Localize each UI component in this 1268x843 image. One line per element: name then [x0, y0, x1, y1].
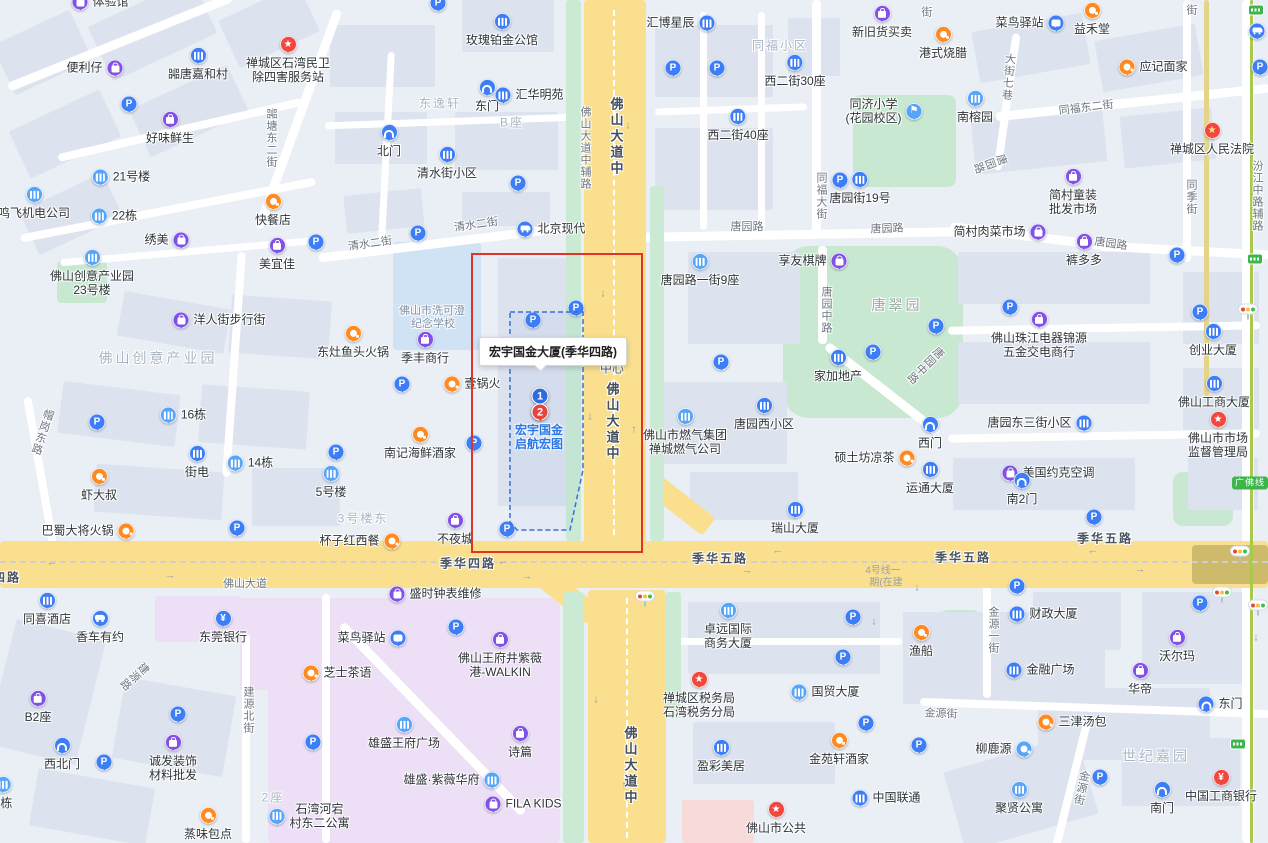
b-icon [189, 47, 206, 64]
result-marker-1[interactable]: 1 [532, 388, 549, 405]
poi-label: 洋人街步行街 [193, 313, 265, 327]
poi-label: 快餐店 [255, 213, 291, 227]
pu-icon-glyph [1069, 174, 1077, 181]
parking-poi[interactable]: P [845, 609, 862, 626]
parking-icon: P [1092, 769, 1109, 786]
selected-poi-tooltip[interactable]: 宏宇国金大厦(季华四路) [479, 337, 627, 366]
parking-icon: P [448, 619, 465, 636]
poi-label: 虾大叔 [81, 488, 117, 502]
poi-label: 东莞银行 [199, 630, 247, 644]
parking-poi[interactable]: P [308, 234, 325, 251]
poi-chat[interactable]: 菜鸟驿站 [337, 630, 406, 647]
poi-label: 西二街30座 [764, 74, 825, 88]
parking-poi[interactable]: P [713, 354, 730, 371]
poi-label: 杯子红西餐 [319, 534, 379, 548]
poi-o[interactable]: 硕土坊凉茶 [834, 450, 915, 467]
poi-label: 西二街40座 [707, 128, 768, 142]
o-icon [344, 325, 361, 342]
poi-pu[interactable]: 盛时钟表维修 [388, 586, 481, 603]
pin-icon-glyph [1021, 746, 1028, 753]
poi-bus[interactable] [1249, 23, 1266, 40]
poi-b[interactable]: 金融广场 [1005, 662, 1074, 679]
pu-icon-glyph [489, 802, 497, 809]
poi-o[interactable]: 港式烧腊 [919, 26, 967, 60]
parking-poi[interactable]: P [665, 60, 682, 77]
poi-o[interactable]: 蒸味包点 [184, 807, 232, 841]
poi-label: 同济小学(花园校区) [846, 97, 902, 125]
g-icon [478, 79, 495, 96]
parking-poi[interactable]: P [928, 318, 945, 335]
poi-label: 禅城区人民法院 [1170, 142, 1254, 156]
parking-poi[interactable]: P [1009, 578, 1026, 595]
poi-b[interactable]: 瑞山大厦 [771, 501, 819, 535]
parking-icon: P [96, 754, 113, 771]
b-icon-glyph [1009, 666, 1018, 674]
poi-g[interactable]: 东门 [1197, 696, 1242, 713]
pu-icon-glyph [1034, 230, 1042, 237]
poi-g[interactable]: 南门 [1150, 781, 1174, 815]
parking-poi[interactable]: P [835, 649, 852, 666]
poi-o[interactable]: 虾大叔 [81, 468, 117, 502]
parking-glyph: P [1174, 250, 1181, 260]
poi-pu[interactable]: 体验馆 [71, 0, 128, 11]
parking-icon: P [858, 715, 875, 732]
parking-poi[interactable]: P [96, 754, 113, 771]
poi-b[interactable]: 财政大厦 [1008, 606, 1077, 623]
g-icon-glyph [1157, 787, 1167, 795]
poi-pu[interactable]: FILA KIDS [484, 796, 561, 813]
poi-pu[interactable]: 绣美 [144, 232, 189, 249]
poi-pu[interactable]: 裤多多 [1066, 233, 1102, 267]
o-icon-glyph [416, 431, 423, 438]
parking-poi[interactable]: P [1192, 595, 1209, 612]
poi-b[interactable]: 唐园西小区 [734, 397, 794, 431]
road-label: 唐翠园 [872, 295, 923, 315]
poi-car[interactable]: 北京现代 [516, 221, 585, 238]
parking-poi[interactable]: P [709, 60, 726, 77]
b-icon-glyph [1080, 419, 1089, 427]
poi-bp[interactable]: 国贸大厦 [790, 684, 859, 701]
b-icon [786, 501, 803, 518]
pu-icon-glyph [835, 259, 843, 266]
poi-rs[interactable]: ★佛山市市场监督管理局 [1188, 411, 1248, 459]
parking-icon: P [709, 60, 726, 77]
poi-bp[interactable]: 石湾河宕村东二公寓 [268, 802, 349, 830]
traffic-light-icon [1238, 304, 1258, 315]
b-icon-glyph [703, 19, 712, 27]
poi-pu[interactable]: 洋人街步行街 [172, 312, 265, 329]
parking-poi[interactable]: P [858, 715, 875, 732]
g-icon [1153, 781, 1170, 798]
road-label: 同福小区 [752, 37, 808, 54]
parking-poi[interactable]: P [466, 435, 483, 452]
poi-ct[interactable]: ★禅城区人民法院 [1170, 122, 1254, 156]
poi-b[interactable]: 运通大厦 [906, 461, 954, 495]
sch-icon-glyph: ⚑ [910, 106, 919, 116]
parking-glyph: P [234, 523, 241, 533]
bank-icon: ¥ [214, 610, 231, 627]
road-verge-green [650, 186, 664, 541]
parking-glyph: P [94, 417, 101, 427]
b-icon-glyph [716, 743, 725, 751]
b-icon [494, 87, 511, 104]
direction-arrow: ↓ [1254, 195, 1260, 206]
parking-poi[interactable]: P [410, 225, 427, 242]
poi-label: 应记面家 [1139, 60, 1187, 74]
poi-bp[interactable]: 唐园路一街9座 [661, 253, 740, 287]
poi-pu[interactable]: 新旧货买卖 [852, 5, 912, 39]
direction-arrow: → [165, 571, 176, 582]
poi-label: 西门 [918, 436, 942, 450]
poi-b[interactable]: 唐园东三街小区 [987, 415, 1092, 432]
pu-icon [484, 796, 501, 813]
poi-label: 创业大厦 [1189, 343, 1237, 357]
poi-g[interactable]: 西北门 [44, 737, 80, 771]
road-label: 佛山大道中 [603, 382, 622, 462]
poi-car[interactable]: 香车有约 [76, 610, 124, 644]
poi-b[interactable]: 西二街30座 [764, 54, 825, 88]
poi-bp[interactable]: 聚贤公寓 [995, 781, 1043, 815]
hotel-icon-glyph [42, 596, 51, 604]
poi-pu[interactable]: 季丰商行 [401, 331, 449, 365]
poi-g[interactable]: 北门 [377, 124, 401, 158]
poi-label: 体验馆 [92, 0, 128, 9]
o-icon-glyph [349, 330, 356, 337]
parking-poi[interactable]: P [911, 737, 928, 754]
poi-o[interactable]: 应记面家 [1118, 59, 1187, 76]
g-icon [1197, 696, 1214, 713]
bp-icon-glyph [29, 190, 38, 198]
poi-bp[interactable]: 6栋 [0, 776, 12, 810]
pu-icon-glyph [451, 518, 459, 525]
parking-glyph: P [175, 709, 182, 719]
poi-label: 雄盛·紫薇华府 [404, 773, 480, 787]
poi-b[interactable]: 中国联通 [851, 790, 920, 807]
bp-icon-glyph [680, 412, 689, 420]
poi-bp[interactable]: 佛山创意产业园23号楼 [50, 249, 134, 297]
poi-o[interactable]: 东灶鱼头火锅 [317, 325, 389, 359]
b-icon [1008, 606, 1025, 623]
result-marker-2[interactable]: 2 [532, 404, 549, 421]
poi-pu[interactable]: 便利仔 [66, 60, 123, 77]
bp-icon [790, 684, 807, 701]
g-icon-glyph [1201, 702, 1211, 710]
parking-poi[interactable]: P [832, 172, 849, 189]
pu-icon [173, 232, 190, 249]
traffic-light-icon [1248, 600, 1268, 611]
bp-icon [227, 455, 244, 472]
poi-label: 佛山市燃气集团禅城燃气公司 [643, 428, 727, 456]
bus-icon-glyph [1252, 28, 1262, 33]
parking-glyph: P [515, 178, 522, 188]
parking-poi[interactable]: P [394, 376, 411, 393]
poi-chat[interactable]: 菜鸟驿站 [995, 15, 1064, 32]
bp-icon-glyph [87, 253, 96, 261]
poi-o[interactable]: 巴蜀大将火锅 [41, 523, 134, 540]
poi-label: 渔船 [909, 644, 933, 658]
poi-o[interactable]: 益禾堂 [1074, 2, 1110, 36]
pu-icon-glyph [516, 731, 524, 738]
parking-poi[interactable]: P [229, 520, 246, 537]
poi-bp[interactable]: 鸣飞机电公司 [0, 186, 70, 220]
parking-glyph: P [840, 652, 847, 662]
poi-o[interactable]: 快餐店 [255, 193, 291, 227]
poi-bp[interactable]: 5号楼 [316, 465, 347, 499]
pu-icon [172, 312, 189, 329]
street-segment [700, 12, 707, 230]
o-icon-glyph [123, 528, 130, 535]
car-icon-glyph [95, 615, 105, 620]
pu-icon-glyph [421, 337, 429, 344]
poi-label: 柳鹿源 [975, 742, 1011, 756]
poi-bp[interactable]: 14栋 [227, 455, 273, 472]
traffic-light-icon [1230, 546, 1250, 557]
parking-poi[interactable]: P [1092, 769, 1109, 786]
parking-glyph: P [714, 63, 721, 73]
parking-poi[interactable]: P [170, 706, 187, 723]
parking-icon: P [466, 435, 483, 452]
rs-icon-glyph: ★ [695, 674, 704, 684]
poi-label: 瑞山大厦 [771, 521, 819, 535]
parking-icon: P [410, 225, 427, 242]
poi-pu[interactable]: 不夜城 [437, 512, 473, 546]
road-label: 街 [918, 6, 934, 18]
poi-sch[interactable]: 同济小学(花园校区)⚑ [846, 97, 923, 125]
road-label: 佛山大道 [223, 575, 267, 591]
poi-label: 西北门 [44, 757, 80, 771]
parking-poi[interactable]: P [865, 344, 882, 361]
parking-icon: P [713, 354, 730, 371]
poi-label: 南榕园 [957, 110, 993, 124]
pu-icon [511, 725, 528, 742]
b-icon-glyph [498, 91, 507, 99]
b-icon [1076, 415, 1093, 432]
pu-icon-glyph [76, 0, 84, 7]
poi-bp[interactable]: 16栋 [160, 407, 206, 424]
parking-poi[interactable]: P [305, 734, 322, 751]
b-icon [699, 15, 716, 32]
poi-b[interactable]: 创业大厦 [1189, 323, 1237, 357]
poi-label: 港式烧腊 [919, 46, 967, 60]
parking-glyph: P [453, 622, 460, 632]
o-icon-glyph [1088, 7, 1095, 14]
bus-icon [1249, 23, 1266, 40]
poi-b[interactable]: 西二街40座 [707, 108, 768, 142]
poi-b[interactable]: 嘂唐嘉和村 [168, 47, 228, 81]
parking-glyph: P [399, 379, 406, 389]
poi-label: 简村童装批发市场 [1049, 188, 1097, 216]
bp-icon-glyph [0, 780, 8, 788]
poi-label: 金融广场 [1026, 663, 1074, 677]
poi-label: 佛山创意产业园23号楼 [50, 269, 134, 297]
pu-icon [1075, 233, 1092, 250]
poi-b[interactable]: 清水街小区 [417, 146, 477, 180]
poi-pu[interactable]: 佛山王府井紫薇港-WALKIN [458, 631, 542, 679]
poi-pu[interactable]: 好味鲜生 [146, 111, 194, 145]
parking-glyph: P [101, 757, 108, 767]
direction-arrow: ← [1088, 546, 1099, 557]
bp-icon-glyph [327, 469, 336, 477]
o-icon [199, 807, 216, 824]
poi-o[interactable]: 南记海鲜酒家 [384, 426, 456, 460]
parking-poi[interactable]: P [430, 0, 447, 12]
pu-icon [161, 111, 178, 128]
poi-pu[interactable]: 享友棋牌 [778, 253, 847, 270]
parking-poi[interactable]: P [1169, 247, 1186, 264]
poi-b[interactable]: 街电 [185, 445, 209, 479]
poi-o[interactable]: 金苑轩酒家 [809, 732, 869, 766]
o-icon-glyph [389, 538, 396, 545]
metro-line-badge: 广佛线 [1232, 477, 1268, 490]
poi-pin[interactable]: 柳鹿源 [975, 741, 1032, 758]
parking-poi[interactable]: P [121, 96, 138, 113]
b-icon [829, 349, 846, 366]
poi-label: 唐园路一街9座 [661, 273, 740, 287]
pu-icon-glyph [1136, 668, 1144, 675]
road-label: 嘂塘东二街 [263, 108, 279, 168]
poi-label: 唐园东三街小区 [987, 416, 1071, 430]
road-label: 季华五路 [1077, 530, 1133, 547]
poi-label: 华帝 [1128, 682, 1152, 696]
parking-icon: P [1169, 247, 1186, 264]
o-icon [411, 426, 428, 443]
poi-rs[interactable]: ★禅城区税务局石湾税务分局 [663, 671, 735, 719]
poi-rb[interactable]: ¥中国工商银行 [1185, 769, 1257, 803]
road-label: 大街七巷 [998, 52, 1018, 101]
parking-poi[interactable]: P [1086, 509, 1103, 526]
parking-poi[interactable]: P [1252, 59, 1268, 76]
poi-b[interactable]: 佛山工商大厦 [1178, 375, 1250, 409]
bus-stop-icon [1230, 739, 1246, 750]
poi-pu[interactable]: 沃尔玛 [1159, 629, 1195, 663]
poi-bp[interactable]: 佛山市燃气集团禅城燃气公司 [643, 408, 727, 456]
parking-glyph: P [1257, 62, 1264, 72]
o-icon [384, 533, 401, 550]
bp-icon-glyph [164, 411, 173, 419]
poi-o[interactable]: 渔船 [909, 624, 933, 658]
b-icon [729, 108, 746, 125]
poi-g[interactable]: 南2门 [1007, 472, 1038, 506]
parking-poi[interactable]: P [1002, 299, 1019, 316]
o-icon-glyph [204, 812, 211, 819]
parking-glyph: P [850, 612, 857, 622]
g-icon [380, 124, 397, 141]
bp-icon [1010, 781, 1027, 798]
poi-pu[interactable]: 佛山珠江电器锦源五金交电商行 [991, 311, 1087, 359]
map-canvas[interactable]: 1 2 宏宇国金大厦(季华四路) 广佛线 清水二街清水二街唐园路唐园路唐园路唐园… [0, 0, 1268, 843]
g-icon [1014, 472, 1031, 489]
poi-pu[interactable]: 简村肉菜市场 [953, 224, 1046, 241]
o-icon [1083, 2, 1100, 19]
pu-icon [1131, 662, 1148, 679]
poi-bp[interactable]: 雄盛·紫薇华府 [404, 772, 501, 789]
rs-icon: ★ [767, 801, 784, 818]
poi-b[interactable]: 汇博星辰 [646, 15, 715, 32]
poi-hotel[interactable]: 同喜酒店 [23, 592, 71, 626]
parking-glyph: P [718, 357, 725, 367]
g-icon [53, 737, 70, 754]
poi-o[interactable]: 三津汤包 [1037, 714, 1106, 731]
poi-label: 南2门 [1007, 492, 1038, 506]
poi-label: 财政大厦 [1029, 607, 1077, 621]
o-icon-glyph [95, 473, 102, 480]
parking-poi[interactable]: P [510, 175, 527, 192]
parking-poi[interactable]: P [89, 414, 106, 431]
poi-label: 硕土坊凉茶 [834, 451, 894, 465]
poi-pu[interactable]: 美宜佳 [259, 237, 295, 271]
b-icon [493, 13, 510, 30]
poi-b[interactable]: 玫瑰铂金公馆 [466, 13, 538, 47]
pu-icon-glyph [177, 318, 185, 325]
poi-pu[interactable]: 简村童装批发市场 [1049, 168, 1097, 216]
poi-label: 东门 [1218, 697, 1242, 711]
poi-pu[interactable]: 诚发装饰材料批发 [149, 734, 197, 782]
poi-label: 菜鸟驿站 [995, 16, 1043, 30]
direction-arrow: ↑ [621, 781, 627, 792]
parking-poi[interactable]: P [1192, 304, 1209, 321]
road-label: 金源街 [924, 704, 958, 721]
b-icon [1205, 375, 1222, 392]
bp-icon-glyph [272, 812, 281, 820]
poi-bp[interactable]: 卓远国际商务大厦 [704, 602, 752, 650]
g-icon-glyph [482, 85, 492, 93]
road-label: 季华四路 [0, 569, 21, 586]
b-icon-glyph [1208, 327, 1217, 335]
poi-pu[interactable]: 华帝 [1128, 662, 1152, 696]
poi-b[interactable]: 家加地产 [814, 349, 862, 383]
poi-bp[interactable]: 21号楼 [92, 169, 150, 186]
parking-icon: P [229, 520, 246, 537]
poi-label: 芝士茶语 [323, 666, 371, 680]
rs-icon: ★ [279, 36, 296, 53]
poi-b[interactable]: 盈彩美居 [697, 739, 745, 773]
o-icon-glyph [939, 31, 946, 38]
poi-pu[interactable]: B2座 [25, 690, 52, 724]
bp-icon [268, 808, 285, 825]
parking-glyph: P [1197, 598, 1204, 608]
poi-o[interactable]: 芝士茶语 [302, 665, 371, 682]
parking-poi[interactable]: P [328, 444, 345, 461]
poi-label: 东灶鱼头火锅 [317, 345, 389, 359]
pu-icon-glyph [177, 238, 185, 245]
poi-rs[interactable]: ★禅城区石湾民卫除四害服务站 [246, 36, 330, 84]
poi-label: 雄盛王府广场 [368, 736, 440, 750]
poi-o[interactable]: 壹锅火 [443, 376, 500, 393]
b-icon-glyph [497, 17, 506, 25]
direction-arrow: ↓ [593, 695, 599, 706]
pu-icon-glyph [169, 740, 177, 747]
poi-pu[interactable]: 诗篇 [508, 725, 532, 759]
parking-glyph: P [863, 718, 870, 728]
poi-g[interactable]: 西门 [918, 416, 942, 450]
poi-rs[interactable]: ★佛山市公共 [746, 801, 806, 835]
poi-bp[interactable]: 南榕园 [957, 90, 993, 124]
poi-o[interactable]: 杯子红西餐 [319, 533, 400, 550]
poi-bp[interactable]: 雄盛王府广场 [368, 716, 440, 750]
bp-icon-glyph [696, 257, 705, 265]
parking-poi[interactable]: P [448, 619, 465, 636]
road-label: 佛山创意产业园 [99, 348, 218, 368]
bp-icon-glyph [231, 459, 240, 467]
road-label: 建源北街 [240, 686, 256, 734]
poi-b[interactable]: 汇华明苑 [494, 87, 563, 104]
poi-label: 禅城区石湾民卫除四害服务站 [246, 56, 330, 84]
poi-bank[interactable]: ¥东莞银行 [199, 610, 247, 644]
poi-label: 诗篇 [508, 745, 532, 759]
parking-glyph: P [1091, 512, 1098, 522]
poi-bp[interactable]: 22栋 [91, 208, 137, 225]
poi-label: 6栋 [0, 796, 12, 810]
